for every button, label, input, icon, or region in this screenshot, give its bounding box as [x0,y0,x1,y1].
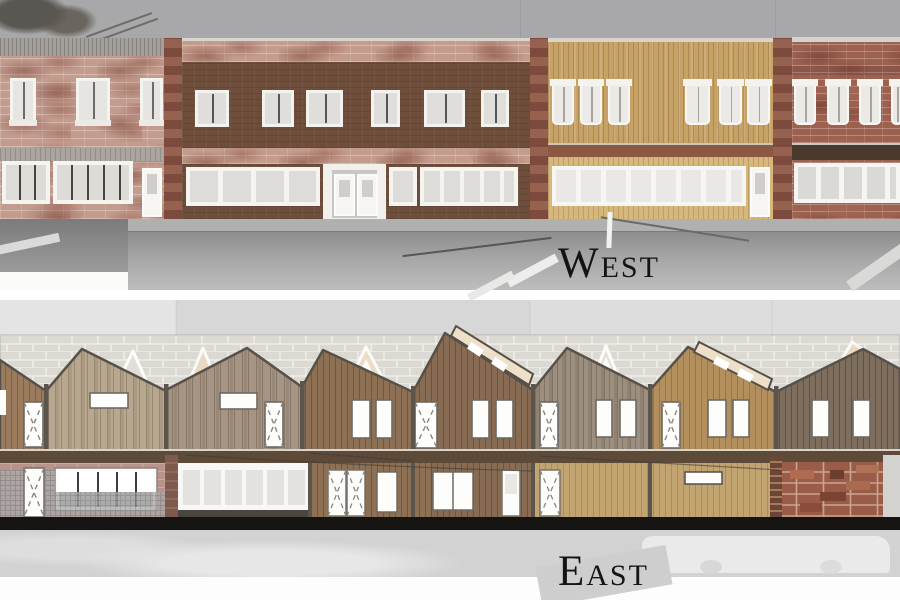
upper-window [580,84,602,125]
entry-door [142,168,162,217]
upper-window [552,84,574,125]
brick-facade [182,62,530,148]
upper-brick-band [182,41,530,62]
storefront-window [186,167,320,206]
car-ghost [642,536,890,573]
street-white-patch [0,272,128,290]
ribbon-window [90,393,128,408]
elevation-board: West [0,0,900,600]
upper-window-partial [891,84,900,125]
upper-window [719,84,742,125]
storefront-window [389,167,417,206]
upper-window [76,78,110,123]
x-door [540,470,560,516]
white-storefront [178,463,310,518]
parapet-band [0,38,164,56]
car-wheel [700,560,722,574]
window [708,400,726,437]
double-door-right [357,174,378,216]
mid-brick-band [182,148,530,164]
east-sky-photo [0,300,176,338]
upper-window [608,84,630,125]
storefront-window [2,161,50,204]
window [496,400,513,438]
upper-window [10,78,36,123]
ground-line [0,517,900,530]
x-door [328,470,346,516]
x-door [662,402,680,448]
upper-window [306,90,343,127]
double-door-left [334,174,355,216]
sky-seam [520,0,521,40]
x-door [540,402,558,448]
window [472,400,489,438]
brick-pilaster [164,38,182,219]
car-wheel [820,560,842,574]
red-brick-wall [782,462,883,518]
window [377,472,397,512]
east-sky-photo [530,300,900,338]
awning-band [792,143,900,160]
window [620,400,636,437]
sky-seam [775,0,776,40]
window [733,400,749,437]
storefront-window [794,163,900,203]
window [596,400,612,437]
upper-window [685,84,710,125]
brick-pilaster [773,38,792,219]
upper-window [262,90,294,127]
window [853,400,870,437]
brick-ladder-pilaster [770,455,782,518]
window [376,400,392,438]
soldier-course [792,66,900,75]
storefront-window [420,167,518,206]
upper-window [371,90,400,127]
sign-panel [685,472,722,484]
upper-window [424,90,465,127]
bottom-white-strip [0,577,900,600]
storefront-window [53,161,133,204]
upper-window [747,84,770,125]
window [352,400,370,438]
x-door [24,468,44,517]
x-door [347,470,365,516]
east-elevation-drawing [0,300,900,535]
brick-pilaster [530,38,548,219]
sidewalk-band [0,219,900,232]
upper-window [794,84,816,125]
upper-window [481,90,509,127]
upper-window [195,90,229,127]
window [812,400,829,437]
upper-window [859,84,881,125]
entry-door [750,167,770,217]
west-label: West [558,242,660,285]
east-label: East [558,550,649,593]
upper-window [140,78,163,123]
upper-window [827,84,849,125]
x-door [415,402,437,448]
ribbon-window [220,393,257,409]
storefront-window [552,166,746,206]
x-door [265,402,283,447]
mesh-storefront [0,468,165,518]
east-sky-photo [176,300,530,338]
mid-band [548,143,773,157]
cornice-band [0,148,164,161]
